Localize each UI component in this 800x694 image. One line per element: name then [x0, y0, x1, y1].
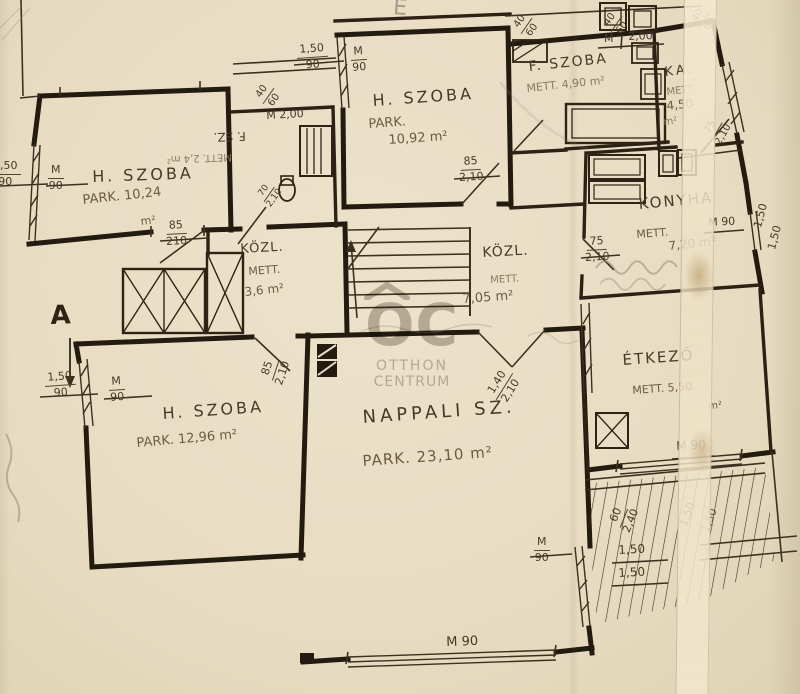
otthon-centrum-watermark: OC OTTHON CENTRUM [350, 282, 474, 390]
dim-window-bl-size: 1,5090 [44, 370, 76, 400]
section-marker-a: A [50, 301, 71, 330]
floor-plan: H. SZOBA PARK. 10,24 m² H. SZOBA PARK. 1… [0, 0, 800, 694]
area-prefix-konyha: METT. [636, 227, 669, 241]
dim-2-00: 2,00 [628, 30, 653, 43]
dim-m90-nappali-right: M90 [534, 536, 550, 564]
dim-window-tl-size: 1,5090 [0, 160, 21, 188]
room-label-kozl-small: KÖZL. [240, 241, 284, 258]
dim-door-tl: 85210 [165, 219, 187, 248]
dim-window-tl-sill: M90 [48, 164, 64, 192]
dim-door-konyha: 752,10 [584, 235, 610, 265]
dim-window-top-sill: M90 [350, 45, 367, 74]
dim-door-top-mid: 852,10 [458, 155, 484, 185]
unit-label-kamra: m² [663, 116, 678, 128]
area-prefix-hszoba-top-mid: PARK. [368, 115, 406, 132]
area-prefix-kozl-main: METT. [490, 273, 520, 286]
unit-label-hszoba-top-left: m² [140, 214, 156, 228]
area-label-fsz-wc: METT. 2,4 m² [167, 151, 232, 164]
room-label-kozl-main: KÖZL. [482, 244, 529, 262]
watermark-line1: OTTHON [350, 358, 474, 374]
dim-window-bl-sill: M90 [108, 375, 125, 404]
dim-m90-nappali-bottom: M 90 [446, 635, 478, 650]
watermark-logo: OC [350, 296, 474, 354]
room-label-fsz-wc: F. SZ. [213, 129, 246, 143]
bathtub-icon [566, 104, 665, 143]
dim-m: M [604, 33, 614, 45]
watermark-line2: CENTRUM [350, 374, 474, 390]
wall-corner-blob [300, 653, 314, 663]
room-label-hszoba-top-left: H. SZOBA [92, 164, 194, 185]
roof-icon [364, 282, 410, 300]
dim-m-2-00-wc: M 2,00 [266, 108, 304, 122]
pencil-note-e: E [392, 0, 408, 21]
radiator-icon [300, 126, 332, 176]
area-prefix-kozl-small: METT. [248, 264, 281, 278]
dim-1-50-terrace-h2: 1,50 [618, 566, 645, 581]
dim-1-50-terrace-h1: 1,50 [618, 543, 645, 558]
kitchen-counter-2 [589, 181, 645, 203]
dim-window-top-size: 1,5090 [296, 42, 328, 72]
